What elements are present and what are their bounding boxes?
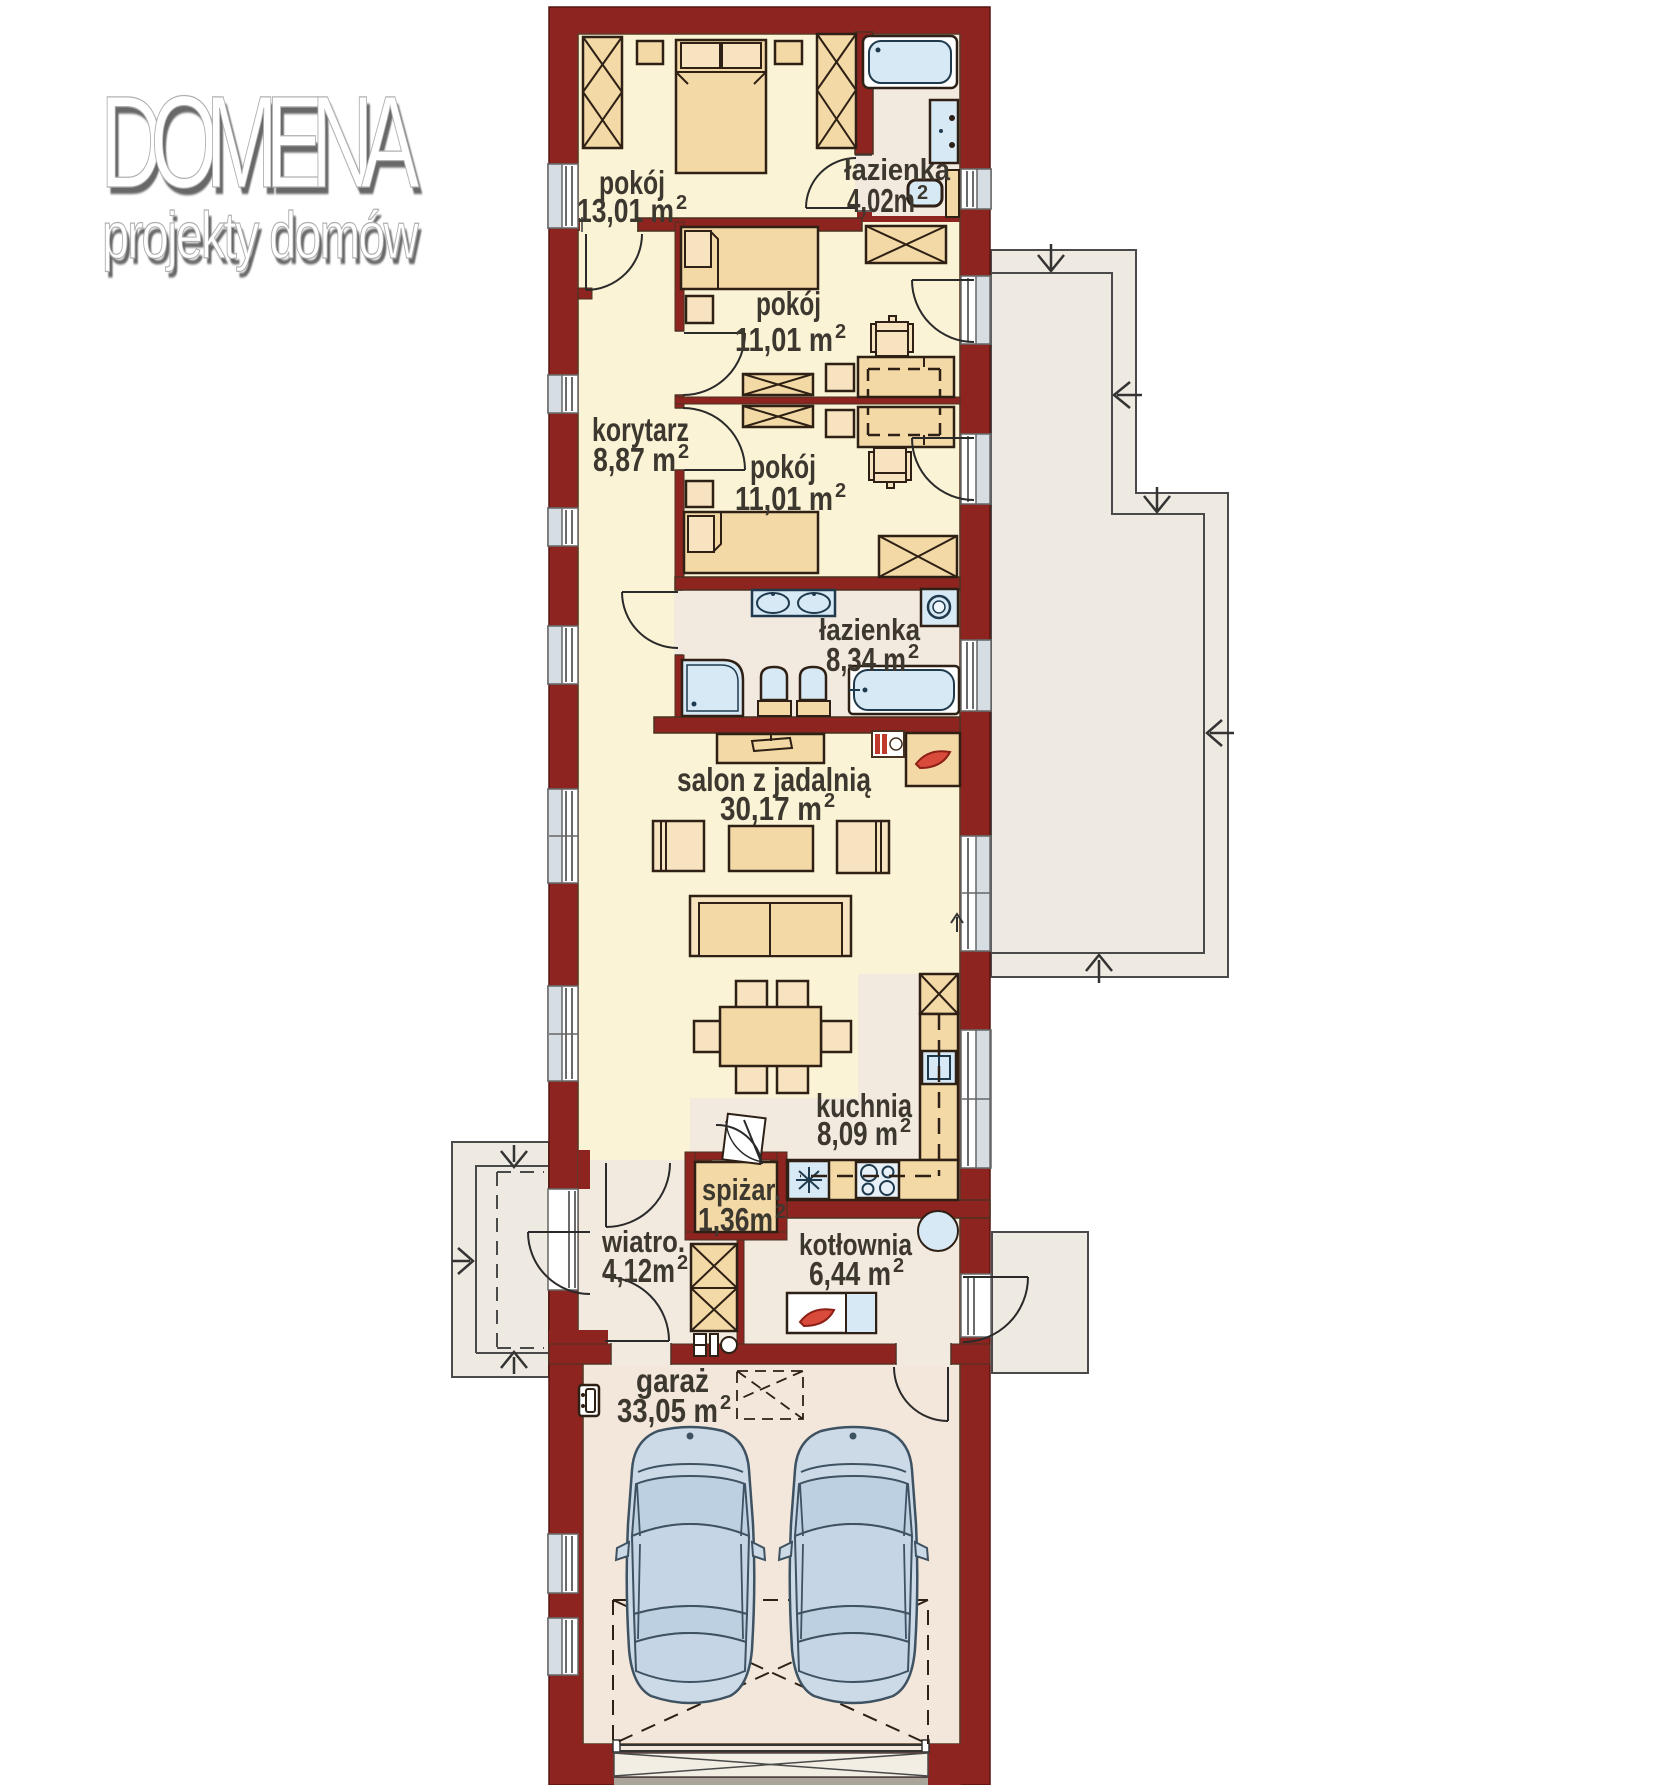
svg-text:projekty domów: projekty domów: [102, 199, 420, 273]
svg-text:DOMENA: DOMENA: [100, 68, 419, 215]
svg-text:1,36m: 1,36m: [698, 1201, 773, 1238]
svg-text:8,34 m: 8,34 m: [826, 641, 906, 678]
svg-text:2: 2: [677, 1252, 688, 1274]
svg-text:8,09 m: 8,09 m: [817, 1115, 898, 1152]
svg-text:pokój: pokój: [756, 285, 821, 322]
svg-text:2: 2: [676, 192, 687, 214]
svg-text:4,12m: 4,12m: [602, 1252, 675, 1289]
svg-text:13,01 m: 13,01 m: [577, 192, 674, 229]
svg-text:2: 2: [835, 321, 846, 343]
svg-text:30,17 m: 30,17 m: [720, 790, 822, 827]
svg-text:11,01 m: 11,01 m: [735, 480, 833, 517]
svg-text:2: 2: [678, 441, 689, 463]
svg-text:2: 2: [835, 480, 846, 502]
svg-text:2: 2: [908, 641, 919, 663]
svg-text:2: 2: [900, 1115, 911, 1137]
svg-text:2: 2: [893, 1255, 904, 1277]
svg-text:11,01 m: 11,01 m: [735, 321, 833, 358]
svg-text:4,02m: 4,02m: [847, 182, 915, 219]
svg-text:2: 2: [720, 1392, 731, 1414]
svg-text:8,87 m: 8,87 m: [593, 441, 676, 478]
svg-text:2: 2: [775, 1201, 786, 1223]
svg-text:6,44 m: 6,44 m: [809, 1255, 891, 1292]
svg-text:33,05 m: 33,05 m: [617, 1392, 718, 1429]
svg-text:2: 2: [917, 182, 928, 204]
svg-text:2: 2: [824, 790, 835, 812]
